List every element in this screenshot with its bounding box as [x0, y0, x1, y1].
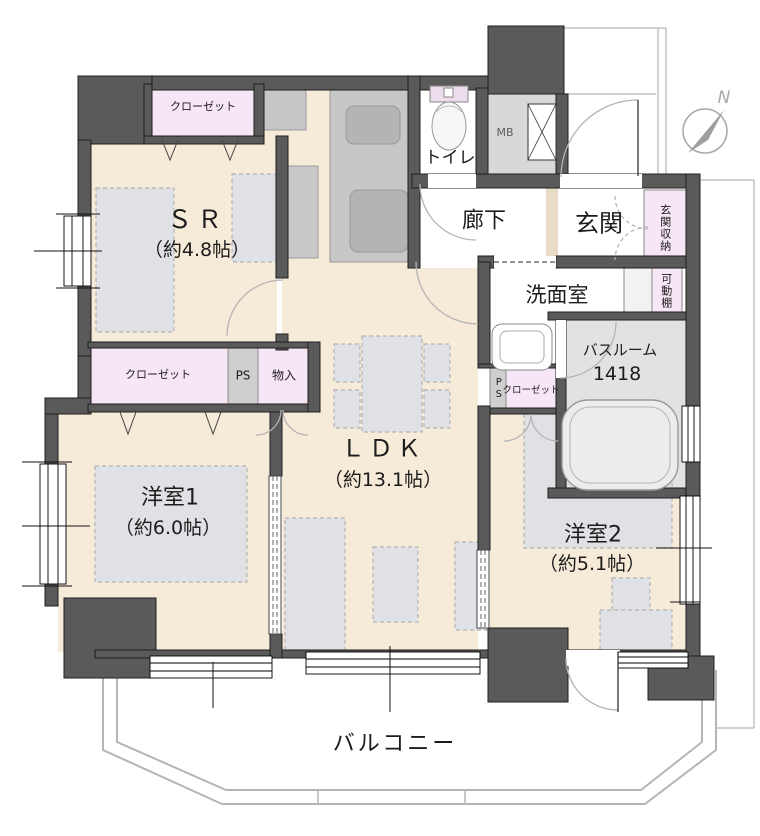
- sr-closet-label: クローゼット: [170, 101, 236, 113]
- compass-north-label: N: [718, 90, 731, 108]
- dining-chair: [334, 344, 360, 382]
- refrigerator: [258, 86, 306, 130]
- bedroom2-desk: [600, 610, 672, 656]
- bedroom2-size-label: （約5.1帖）: [539, 555, 645, 575]
- shaft-block: [488, 26, 564, 94]
- dining-chair: [424, 390, 450, 428]
- sr-label: ＳＲ: [167, 207, 227, 233]
- bedroom2-closet-label: クローゼット: [502, 386, 559, 396]
- kitchen-sink: [346, 106, 400, 144]
- ldk-label: ＬＤＫ: [341, 436, 425, 461]
- entrance-step: [546, 188, 558, 266]
- shelf-area: [624, 262, 652, 320]
- bathroom-label: バスルーム: [583, 343, 658, 359]
- bedroom2-chair: [612, 578, 650, 612]
- pillar: [488, 628, 568, 702]
- bathroom-size-label: 1418: [593, 365, 641, 385]
- sofa: [285, 518, 345, 650]
- dining-table: [362, 336, 422, 432]
- cupboard: [288, 166, 318, 258]
- floor-plan: クローゼット ＳＲ （約4.8帖） トイレ MB 廊下 玄関 玄関収納 洗面室 …: [0, 0, 760, 836]
- west-closet-label: クローゼット: [125, 369, 191, 381]
- balcony-label: バルコニー: [333, 732, 458, 755]
- toilet-label: トイレ: [425, 150, 476, 168]
- dining-chair: [424, 344, 450, 382]
- sr-size-label: （約4.8帖）: [144, 241, 250, 261]
- washroom-label: 洗面室: [526, 284, 589, 306]
- hallway-label: 廊下: [462, 209, 506, 232]
- toilet-button: [444, 88, 453, 97]
- storeroom-label: 物入: [272, 370, 296, 383]
- entrance-storage-label: 玄関収納: [659, 204, 671, 252]
- entrance-label: 玄関: [575, 211, 623, 236]
- ldk-size-label: （約13.1帖）: [324, 471, 442, 491]
- kitchen-stove: [350, 190, 408, 252]
- coffee-table: [373, 547, 418, 622]
- meter-box-label: MB: [496, 127, 513, 139]
- bedroom1-label: 洋室1: [141, 486, 199, 509]
- pipe-space-west-label: PS: [236, 370, 251, 383]
- bathtub: [562, 400, 678, 490]
- floor-plan-drawing: [0, 0, 760, 836]
- dining-chair: [334, 390, 360, 428]
- bedroom1-size-label: （約6.0帖）: [115, 519, 221, 539]
- entrance-door-arc: [561, 100, 638, 177]
- compass-icon: [683, 109, 727, 153]
- movable-shelf-label: 可動棚: [660, 273, 672, 309]
- toilet-bowl: [432, 102, 466, 150]
- bedroom2-label: 洋室2: [564, 523, 622, 546]
